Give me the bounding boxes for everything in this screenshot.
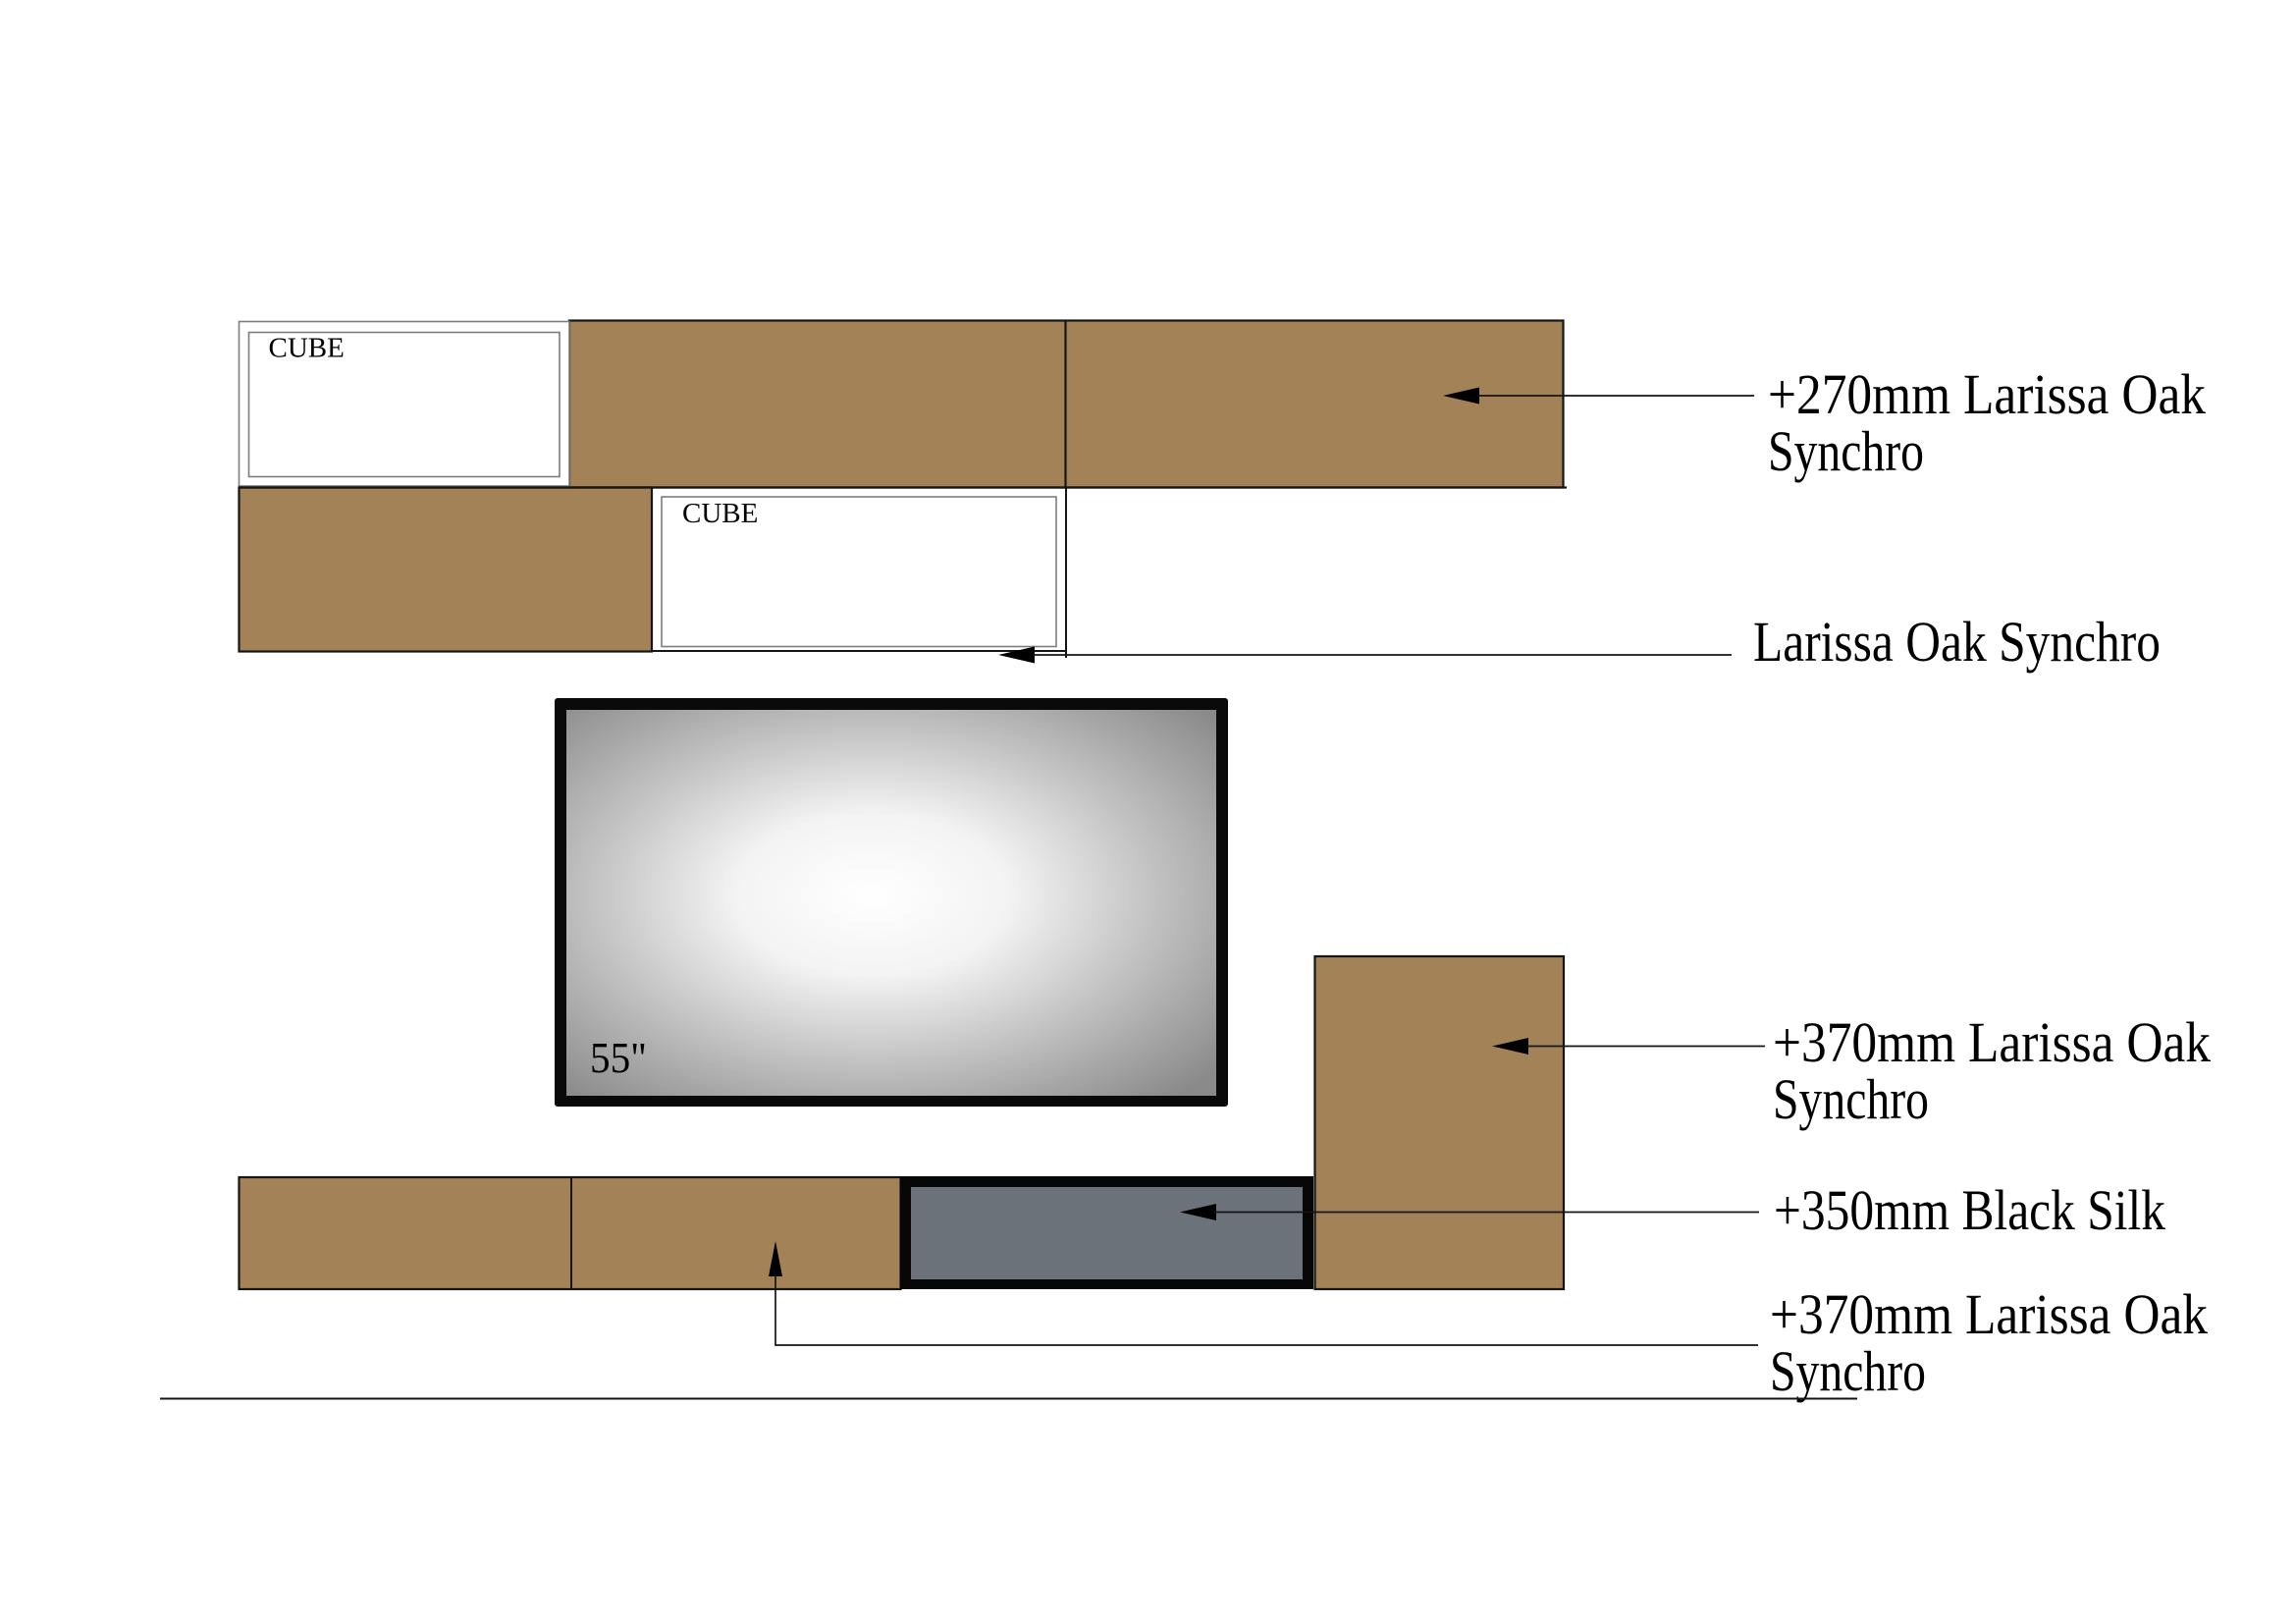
svg-text:Synchro: Synchro [1770,1339,1926,1403]
svg-text:+270mm Larissa Oak: +270mm Larissa Oak [1768,362,2206,426]
svg-text:+350mm Black Silk: +350mm Black Silk [1774,1178,2165,1242]
svg-text:CUBE: CUBE [682,498,758,529]
svg-text:Synchro: Synchro [1773,1067,1929,1131]
svg-text:55": 55" [590,1034,647,1082]
svg-text:+370mm Larissa Oak: +370mm Larissa Oak [1773,1010,2211,1074]
svg-text:+370mm Larissa Oak: +370mm Larissa Oak [1770,1282,2208,1346]
svg-text:Synchro: Synchro [1768,419,1924,483]
svg-text:CUBE: CUBE [269,333,345,364]
svg-text:Larissa Oak Synchro: Larissa Oak Synchro [1753,610,2161,674]
